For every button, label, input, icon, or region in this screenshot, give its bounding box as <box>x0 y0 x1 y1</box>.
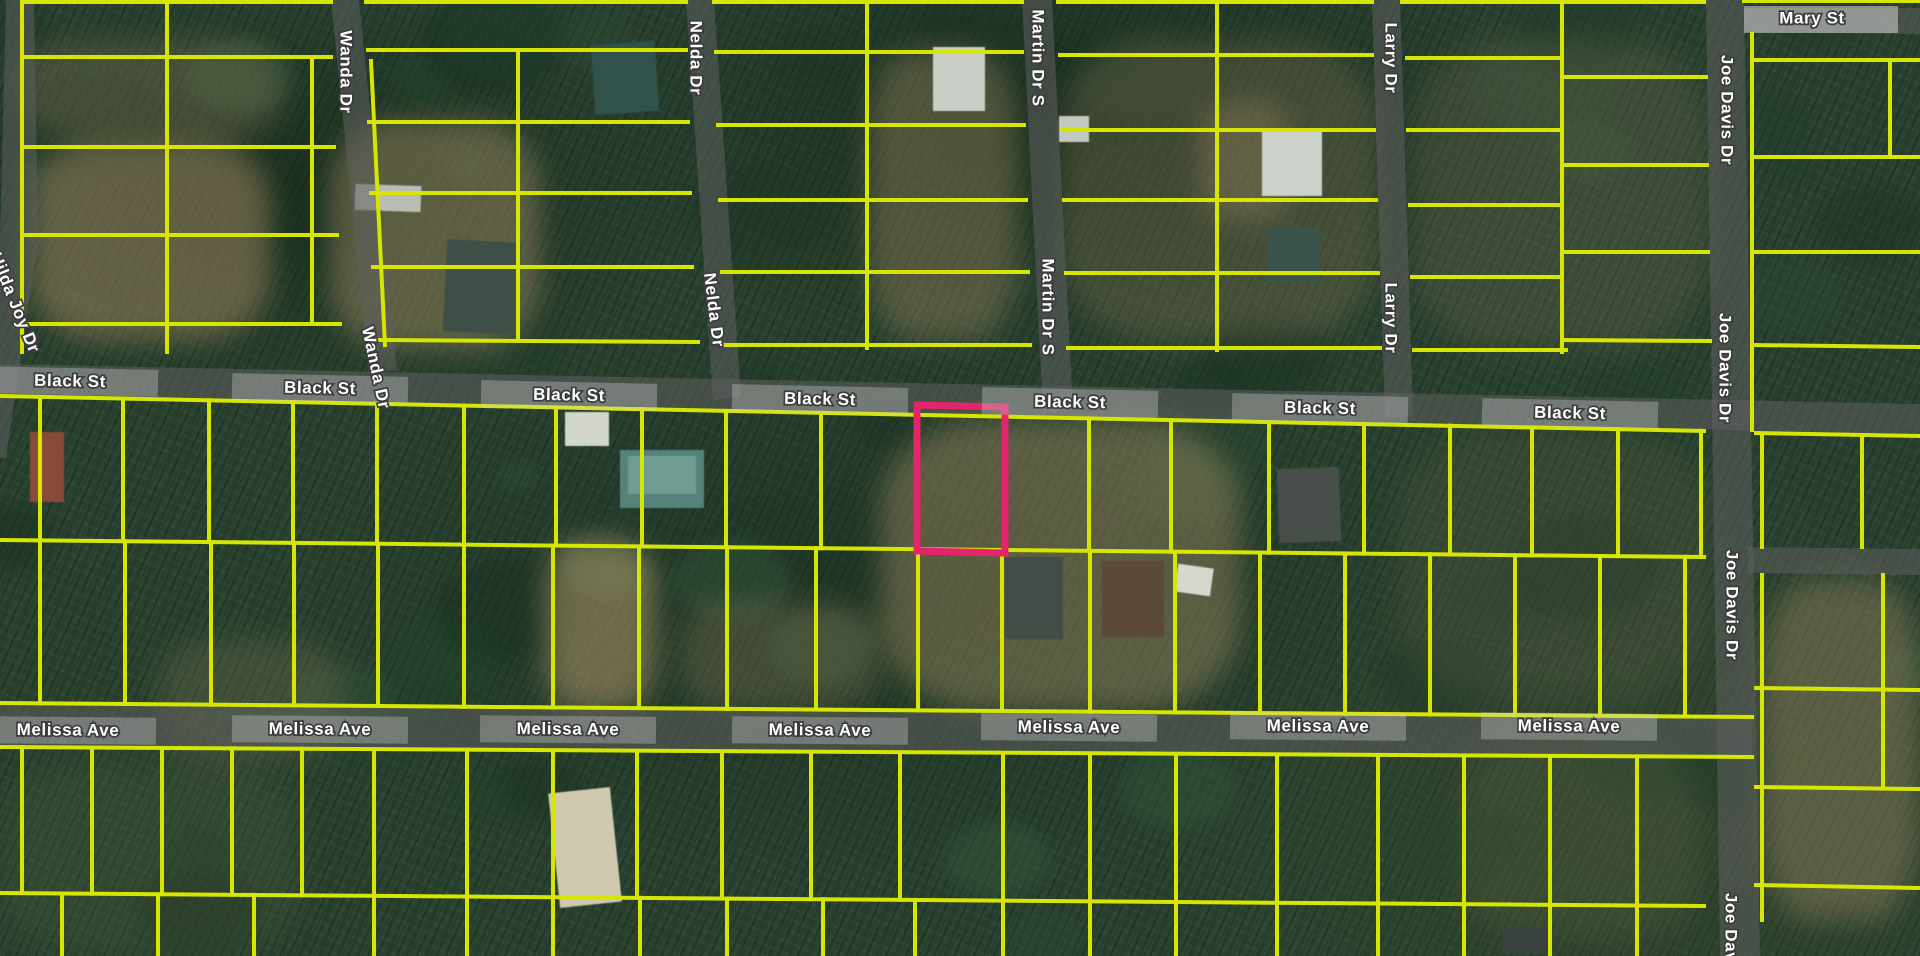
street-label-joe-davis-dr: Joe Davis Dr <box>1723 550 1742 660</box>
parcel-line <box>1756 787 1920 789</box>
street-label-black-st: Black St <box>1284 398 1356 419</box>
street-label-melissa-ave: Melissa Ave <box>1518 716 1621 736</box>
street-label-black-st: Black St <box>1534 403 1606 424</box>
street-label-larry-dr: Larry Dr <box>1382 283 1401 354</box>
parcel-line <box>375 340 698 342</box>
road-east-spur <box>1748 547 1920 575</box>
parcel-line <box>1752 345 1920 347</box>
street-label-nelda-dr: Nelda Dr <box>687 21 706 96</box>
street-label-mary-st: Mary St <box>1779 8 1845 27</box>
street-label-black-st: Black St <box>284 378 356 399</box>
street-label-melissa-ave: Melissa Ave <box>1018 717 1121 737</box>
street-labels-layer: Black StBlack StBlack StBlack StBlack St… <box>0 8 1845 956</box>
street-label-wanda-dr: Wanda Dr <box>337 30 356 114</box>
parcel-line <box>1562 340 1710 341</box>
map-overlay: Black StBlack StBlack StBlack StBlack St… <box>0 0 1920 956</box>
map-canvas[interactable]: Black StBlack StBlack StBlack StBlack St… <box>0 0 1920 956</box>
highlighted-parcel[interactable] <box>917 405 1005 553</box>
parcel-lines-layer <box>0 1 1920 956</box>
street-label-black-st: Black St <box>34 371 106 392</box>
street-label-melissa-ave: Melissa Ave <box>517 719 620 739</box>
street-label-martin-dr-s: Martin Dr S <box>1039 258 1058 355</box>
street-label-black-st: Black St <box>1034 392 1106 413</box>
street-label-larry-dr: Larry Dr <box>1382 23 1401 94</box>
street-label-joe-davis-dr: Joe Davis Dr <box>1722 893 1741 956</box>
street-label-melissa-ave: Melissa Ave <box>269 719 372 739</box>
street-label-melissa-ave: Melissa Ave <box>769 720 872 740</box>
street-label-joe-davis-dr: Joe Davis Dr <box>1718 55 1737 165</box>
street-label-black-st: Black St <box>784 389 856 410</box>
street-label-melissa-ave: Melissa Ave <box>1267 716 1370 736</box>
street-label-martin-dr-s: Martin Dr S <box>1029 9 1048 106</box>
street-label-black-st: Black St <box>533 385 605 406</box>
street-label-melissa-ave: Melissa Ave <box>17 720 120 740</box>
parcel-line <box>1756 688 1920 690</box>
parcel-line <box>1756 885 1920 888</box>
roads-layer <box>0 0 1920 956</box>
street-label-joe-davis-dr: Joe Davis Dr <box>1716 313 1735 423</box>
